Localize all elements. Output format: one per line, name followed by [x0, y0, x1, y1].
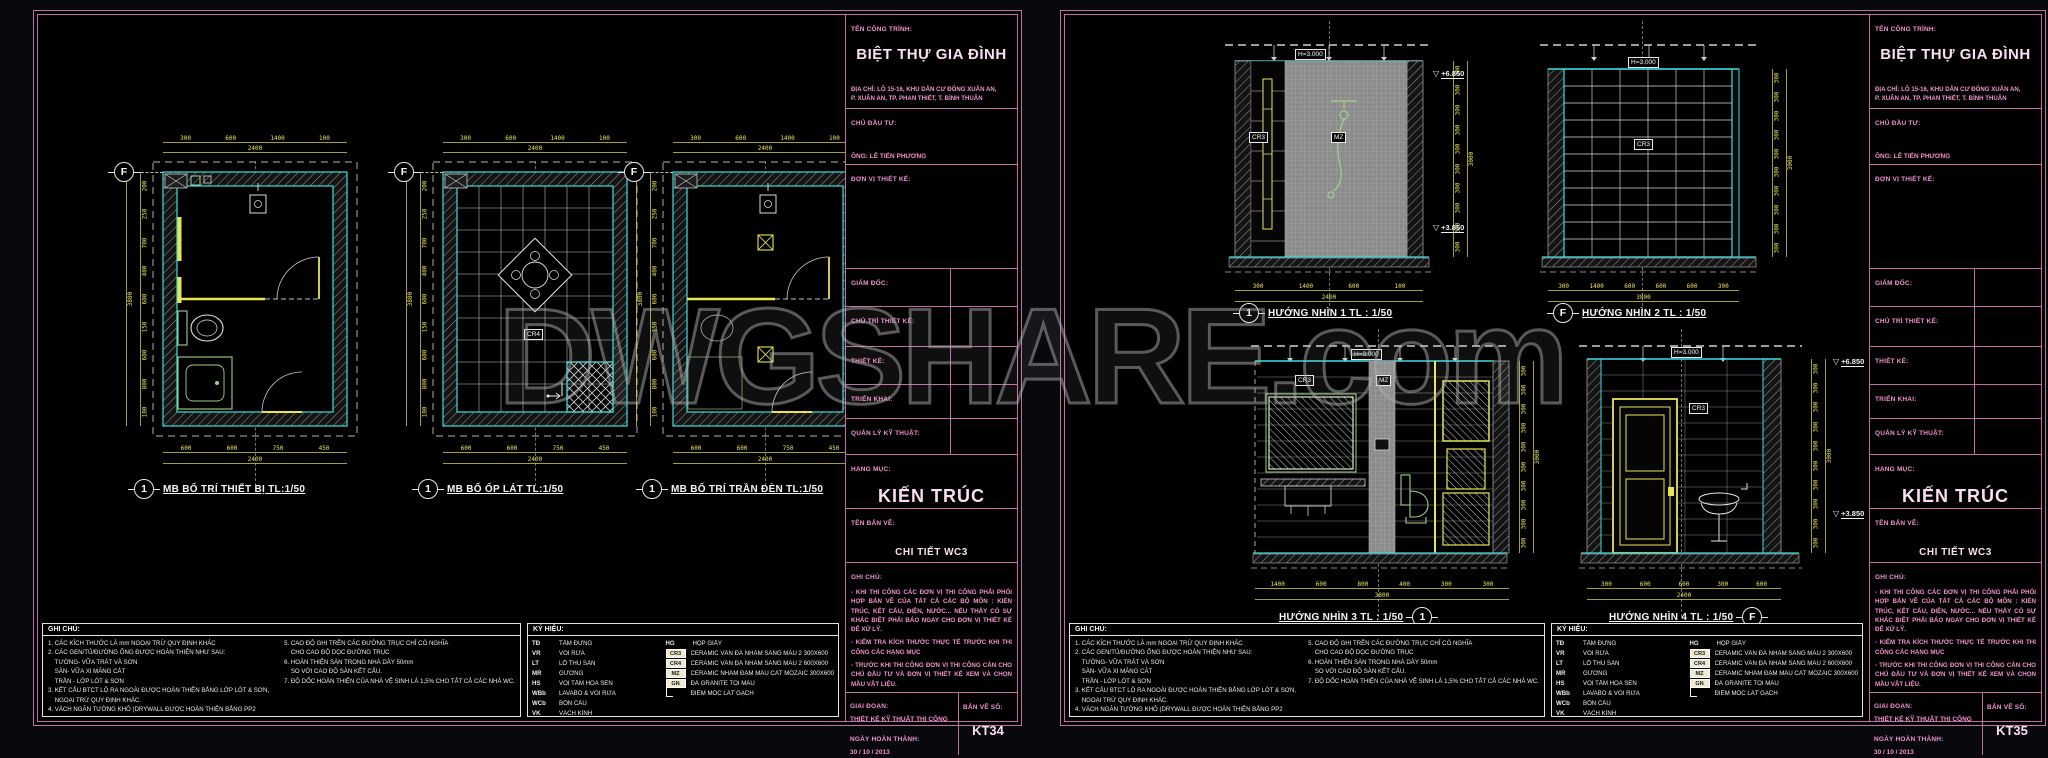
grid-bubble-1: 1	[642, 479, 662, 499]
project-address: ĐỊA CHỈ: LÔ 15-16, KHU DÂN CƯ ĐỒNG XUÂN …	[851, 85, 1012, 105]
legend-row: TĐTẤM ĐỨNG	[532, 638, 662, 648]
legend-name: BỒN CẦU	[559, 700, 587, 707]
legend-name: VÁCH KÍNH	[559, 710, 592, 717]
notes-strip: GHI CHÚ: 1. CÁC KÍCH THƯỚC LÀ mm NGOẠI T…	[42, 623, 839, 717]
grid-bubble-F: F	[394, 162, 414, 182]
legend-name: VÒI RỬA	[559, 650, 585, 657]
dim-col-total: 3000	[1533, 361, 1542, 553]
elevation-1-title-row: 1 HƯỚNG NHÌN 1 TL : 1/50	[1239, 303, 1392, 323]
title-block: TÊN CÔNG TRÌNH: BIỆT THỰ GIA ĐÌNH ĐỊA CH…	[1869, 15, 2041, 721]
notes-strip: GHI CHÚ: 1. CÁC KÍCH THƯỚC LÀ mm NGOẠI T…	[1069, 623, 1863, 717]
tb-develop: TRIỂN KHAI:	[1870, 385, 2041, 419]
elevation-2-title-row: F HƯỚNG NHÌN 2 TL : 1/50	[1553, 303, 1706, 323]
dim-row: 3006001400100	[673, 135, 857, 143]
tb-bottom: GIAI ĐOẠN:THIẾT KẾ KỸ THUẬT THI CÔNG NGÀ…	[846, 693, 1017, 755]
legend-row: CR4CERAMIC VÂN ĐÁ NHÁM SÁNG MÀU 2 600X60…	[1690, 658, 1858, 668]
legend-code: WBb	[532, 690, 554, 697]
legend-code: WCb	[532, 700, 554, 707]
legend-row: MRGƯƠNG	[532, 668, 662, 678]
category-name: KIẾN TRÚC	[851, 486, 1012, 507]
tb-category: HẠNG MỤC: KIẾN TRÚC	[846, 455, 1017, 509]
grid-bubble-F: F	[624, 162, 644, 182]
height-tag: H=3.000	[1351, 349, 1382, 360]
plan-2-drawing	[430, 159, 640, 439]
legend-name: LAVABO & VÒI RỬA	[1583, 690, 1640, 697]
dim-row: 600600750450	[673, 445, 857, 453]
legend-code: GN	[666, 679, 686, 688]
tb-phase: GIAI ĐOẠN:THIẾT KẾ KỸ THUẬT THI CÔNG	[846, 693, 958, 726]
height-tag: H=3.000	[1295, 49, 1326, 60]
dim-col: 300300300300300300300300300300	[1772, 69, 1781, 257]
investor-label: CHỦ ĐẦU TƯ:	[851, 120, 897, 127]
legend-code: MR	[532, 670, 554, 677]
tb-sheet-number: BẢN VẼ SỐ: KT35	[1983, 693, 2041, 755]
legend-code	[666, 688, 686, 699]
legend-row: HSVÒI TẮM HOA SEN	[1556, 678, 1686, 688]
legend-code: MZ	[666, 669, 686, 678]
design-unit-label: ĐƠN VỊ THIẾT KẾ:	[851, 176, 911, 183]
legend-row: HGHỘP GIẤY	[1690, 638, 1858, 648]
tb-notes: GHI CHÚ: - KHI THI CÔNG CÁC ĐƠN VỊ THI C…	[846, 563, 1017, 693]
legend-name: TẤM ĐỨNG	[1583, 640, 1616, 647]
legend-name: VÒI TẮM HOA SEN	[559, 680, 613, 687]
legend-name: VÁCH KÍNH	[1583, 710, 1616, 717]
tb-designer: THIẾT KẾ:	[846, 347, 1017, 385]
tb-date: NGÀY HOÀN THÀNH:30 / 10 / 2013	[846, 726, 958, 758]
legend-code: GN	[1690, 679, 1710, 688]
legend-code: VK	[1556, 710, 1578, 717]
legend-code: HG	[666, 640, 688, 647]
tb-project: TÊN CÔNG TRÌNH: BIỆT THỰ GIA ĐÌNH ĐỊA CH…	[1870, 15, 2041, 109]
view-title: MB BỐ ỐP LÁT TL:1/50	[447, 484, 563, 495]
legend-code: VR	[1556, 650, 1578, 657]
legend-row: TĐTẤM ĐỨNG	[1556, 638, 1686, 648]
legend-code: HG	[1690, 640, 1712, 647]
legend-row: CR3CERAMIC VÂN ĐÁ NHÁM SÁNG MÀU 2 300X60…	[1690, 648, 1858, 658]
dim-col: 200250700400600150600800100	[650, 172, 659, 426]
tile-tag-mz: MZ	[1376, 375, 1391, 386]
legend-code: TĐ	[532, 640, 554, 647]
legend-row: VKVÁCH KÍNH	[532, 708, 662, 718]
legend-name: ĐÁ GRANITE TỐI MÀU	[691, 680, 755, 687]
drawing-name: CHI TIẾT WC3	[1875, 547, 2036, 558]
notes-col-1: 1. CÁC KÍCH THƯỚC LÀ mm NGOẠI TRỪ QUY ĐỊ…	[43, 636, 279, 718]
dim-col-total: 3000	[1467, 61, 1476, 257]
legend-name: VÒI RỬA	[1583, 650, 1609, 657]
investor-name: ÔNG: LÊ TIẾN PHƯƠNG	[851, 153, 926, 160]
dim-row-total: 2400	[443, 456, 627, 464]
tb-drawing-name: TÊN BẢN VẼ: CHI TIẾT WC3	[1870, 509, 2041, 563]
view-title: HƯỚNG NHÌN 3 TL : 1/50	[1279, 612, 1403, 623]
tb-note-2: - KIỂM TRA KÍCH THƯỚC THỰC TẾ TRƯỚC KHI …	[1875, 638, 2036, 657]
sheet-left: 3006001400100 2400 3800 2002507004006001…	[33, 10, 1022, 726]
dim-row-total: 2400	[163, 145, 347, 153]
tb-director: GIÁM ĐỐC:	[846, 269, 1017, 307]
view-title: HƯỚNG NHÌN 2 TL : 1/50	[1582, 308, 1706, 319]
legend-name: CERAMIC VÂN ĐÁ NHÁM SÁNG MÀU 2 600X600	[1715, 660, 1853, 667]
tile-tag-cr3: CR3	[1634, 139, 1653, 150]
legend-code: HS	[532, 680, 554, 687]
grid-bubble-1: 1	[134, 479, 154, 499]
legend-row: WCbBỒN CẦU	[1556, 698, 1686, 708]
tb-note-3: - TRƯỚC KHI THI CÔNG ĐƠN VỊ THI CÔNG CẦN…	[1875, 661, 2036, 689]
legend-name: GƯƠNG	[559, 670, 583, 677]
legend-code: CR3	[1690, 649, 1710, 658]
canvas: 3006001400100 2400 3800 2002507004006001…	[0, 0, 2048, 733]
dim-col-total: 3800	[126, 172, 135, 426]
plan-tiling-layout: 3006001400100 2400 3800 2002507004006001…	[384, 129, 644, 474]
legend-box: KÝ HIỆU: TĐTẤM ĐỨNGVRVÒI RỬALTLỖ THU SÀN…	[527, 623, 839, 717]
legend-code: WCb	[1556, 700, 1578, 707]
legend-row: CR4CERAMIC VÂN ĐÁ NHÁM SÁNG MÀU 2 600X60…	[666, 658, 834, 668]
legend-code: HS	[1556, 680, 1578, 687]
tb-note-1: - KHI THI CÔNG CÁC ĐƠN VỊ THI CÔNG PHẢI …	[851, 588, 1012, 634]
tb-sheet-number: BẢN VẼ SỐ: KT34	[959, 693, 1017, 755]
elevation-view-2: H=3.000 CR3 3003003003003003003003003003…	[1516, 27, 1816, 309]
legend-code: WBb	[1556, 690, 1578, 697]
legend-code: MZ	[1690, 669, 1710, 678]
legend-row: GNĐÁ GRANITE TỐI MÀU	[666, 678, 834, 688]
legend-name: CERAMIC VÂN ĐÁ NHÁM SÁNG MÀU 2 300X600	[1715, 650, 1853, 657]
legend-name: LAVABO & VÒI RỬA	[559, 690, 616, 697]
project-label: TÊN CÔNG TRÌNH:	[1875, 26, 1936, 33]
level-marker-upper: ▽+6.850	[1433, 69, 1464, 79]
dim-row: 3001400600100	[1235, 283, 1423, 291]
legend-code: CR4	[1690, 659, 1710, 668]
tb-design-lead: CHỦ TRÌ THIẾT KẾ:	[1870, 307, 2041, 347]
plan-3-title-row: 1 MB BỐ TRÍ TRẦN ĐÈN TL:1/50	[642, 479, 823, 499]
legend-name: GƯƠNG	[1583, 670, 1607, 677]
legend-col-left: TĐTẤM ĐỨNGVRVÒI RỬALTLỖ THU SÀNMRGƯƠNGHS…	[532, 638, 662, 718]
legend-row: LTLỖ THU SÀN	[1556, 658, 1686, 668]
legend-row: MZCERAMIC NHÁM ĐẬM MÀU CÁT MOZAIC 300X60…	[1690, 668, 1858, 678]
elevation-1-drawing	[1219, 39, 1439, 279]
tile-tag-cr3: CR3	[1249, 132, 1268, 143]
dim-col: 300300300300300300300300300300	[1811, 359, 1820, 553]
dim-col-total: 3000	[1825, 359, 1834, 553]
dim-row: 300600600300600	[1587, 581, 1781, 589]
title-block: TÊN CÔNG TRÌNH: BIỆT THỰ GIA ĐÌNH ĐỊA CH…	[845, 15, 1017, 721]
grid-bubble-F: F	[1553, 303, 1573, 323]
tb-note-2: - KIỂM TRA KÍCH THƯỚC THỰC TẾ TRƯỚC KHI …	[851, 638, 1012, 657]
legend-name: CERAMIC VÂN ĐÁ NHÁM SÁNG MÀU 2 300X600	[691, 650, 829, 657]
tb-tech-manager: QUẢN LÝ KỸ THUẬT:	[1870, 419, 2041, 455]
legend-row: VKVÁCH KÍNH	[1556, 708, 1686, 718]
tile-tag-mz: MZ	[1331, 132, 1346, 143]
dim-row: 3006001400100	[163, 135, 347, 143]
legend-code: CR3	[666, 649, 686, 658]
legend-row: MRGƯƠNG	[1556, 668, 1686, 678]
legend-row: ĐIỂM MỐC LÁT GẠCH	[666, 688, 834, 698]
tb-date: NGÀY HOÀN THÀNH:30 / 10 / 2013	[1870, 726, 1982, 758]
sheet-right: H=3.000 CR3 MZ 3003003003003003003003003…	[1060, 10, 2046, 726]
project-label: TÊN CÔNG TRÌNH:	[851, 26, 912, 33]
tb-note-3: - TRƯỚC KHI THI CÔNG ĐƠN VỊ THI CÔNG CẦN…	[851, 661, 1012, 689]
legend-row: ĐIỂM MỐC LÁT GẠCH	[1690, 688, 1858, 698]
general-notes-box: GHI CHÚ: 1. CÁC KÍCH THƯỚC LÀ mm NGOẠI T…	[42, 623, 521, 717]
tb-phase: GIAI ĐOẠN:THIẾT KẾ KỸ THUẬT THI CÔNG	[1870, 693, 1982, 726]
view-title: HƯỚNG NHÌN 4 TL : 1/50	[1609, 612, 1733, 623]
legend-code: LT	[1556, 660, 1578, 667]
elevation-4-drawing	[1573, 341, 1808, 576]
dim-row-total: 3800	[1548, 294, 1739, 302]
legend-header: KÝ HIỆU:	[528, 624, 838, 636]
elevation-view-3: H=3.000 CR3 MZ 3003003003003003003003003…	[1231, 331, 1551, 609]
tb-investor: CHỦ ĐẦU TƯ: ÔNG: LÊ TIẾN PHƯƠNG	[846, 109, 1017, 165]
dim-col-total: 3800	[636, 172, 645, 426]
legend-col-right: HGHỘP GIẤYCR3CERAMIC VÂN ĐÁ NHÁM SÁNG MÀ…	[666, 638, 834, 718]
grid-bubble-1: 1	[418, 479, 438, 499]
legend-box: KÝ HIỆU: TĐTẤM ĐỨNGVRVÒI RỬALTLỖ THU SÀN…	[1551, 623, 1863, 717]
project-name: BIỆT THỰ GIA ĐÌNH	[851, 46, 1012, 63]
plan-1-drawing	[150, 159, 360, 439]
tb-bottom: GIAI ĐOẠN:THIẾT KẾ KỸ THUẬT THI CÔNG NGÀ…	[1870, 693, 2041, 755]
plan-equipment-layout: 3006001400100 2400 3800 2002507004006001…	[104, 129, 364, 474]
legend-row: GNĐÁ GRANITE TỐI MÀU	[1690, 678, 1858, 688]
tb-develop: TRIỂN KHAI:	[846, 385, 1017, 419]
legend-row: HGHỘP GIẤY	[666, 638, 834, 648]
dim-col: 200250700400600150600800100	[420, 172, 429, 426]
investor-label: CHỦ ĐẦU TƯ:	[1875, 120, 1921, 127]
tile-tag-cr4: CR4	[524, 329, 543, 340]
level-marker-lower: ▽+3.850	[1833, 509, 1864, 519]
sheet-number: KT34	[963, 723, 1013, 738]
dim-row: 3001400600600600300	[1548, 283, 1739, 291]
tb-tech-manager: QUẢN LÝ KỸ THUẬT:	[846, 419, 1017, 455]
notes-header: GHI CHÚ:	[43, 624, 520, 636]
sheet-number: KT35	[1987, 723, 2037, 738]
tb-drawing-name: TÊN BẢN VẼ: CHI TIẾT WC3	[846, 509, 1017, 563]
dim-row-total: 2400	[1235, 294, 1423, 302]
legend-row: VRVÒI RỬA	[532, 648, 662, 658]
legend-name: CERAMIC NHÁM ĐẬM MÀU CÁT MOZAIC 300X600	[1715, 670, 1858, 677]
tb-designer: THIẾT KẾ:	[1870, 347, 2041, 385]
legend-name: VÒI TẮM HOA SEN	[1583, 680, 1637, 687]
legend-row: WCbBỒN CẦU	[532, 698, 662, 708]
view-title: MB BỐ TRÍ THIẾT BỊ TL:1/50	[163, 484, 305, 495]
tile-tag-cr3: CR3	[1689, 403, 1708, 414]
legend-name: ĐIỂM MỐC LÁT GẠCH	[691, 690, 754, 697]
tb-director: GIÁM ĐỐC:	[1870, 269, 2041, 307]
dim-col: 200250700400600150600800100	[140, 172, 149, 426]
legend-name: ĐIỂM MỐC LÁT GẠCH	[1715, 690, 1778, 697]
notes-col-2: 5. CAO ĐỘ GHI TRÊN CÁC ĐƯỜNG TRỤC CHỈ CÓ…	[279, 636, 520, 718]
legend-code: CR4	[666, 659, 686, 668]
tb-design-lead: CHỦ TRÌ THIẾT KẾ:	[846, 307, 1017, 347]
tb-note-1: - KHI THI CÔNG CÁC ĐƠN VỊ THI CÔNG PHẢI …	[1875, 588, 2036, 634]
grid-bubble-F: F	[114, 162, 134, 182]
plan-2-title-row: 1 MB BỐ ỐP LÁT TL:1/50	[418, 479, 563, 499]
plan-ceiling-layout: 3006001400100 2400 3800 2002507004006001…	[614, 129, 874, 474]
legend-row: CR3CERAMIC VÂN ĐÁ NHÁM SÁNG MÀU 2 300X60…	[666, 648, 834, 658]
dim-col-total: 3800	[406, 172, 415, 426]
dim-row-total: 2400	[443, 145, 627, 153]
legend-code: MR	[1556, 670, 1578, 677]
drawing-name: CHI TIẾT WC3	[851, 547, 1012, 558]
dim-row-total: 3800	[1255, 592, 1509, 600]
legend-name: HỘP GIẤY	[1717, 640, 1746, 647]
tb-design-unit: ĐƠN VỊ THIẾT KẾ:	[846, 165, 1017, 269]
legend-header: KÝ HIỆU:	[1552, 624, 1862, 636]
tb-investor: CHỦ ĐẦU TƯ: ÔNG: LÊ TIẾN PHƯƠNG	[1870, 109, 2041, 165]
dim-col: 300300300300300300300300300300	[1519, 361, 1528, 553]
elevation-2-drawing	[1534, 39, 1764, 279]
legend-row: VRVÒI RỬA	[1556, 648, 1686, 658]
legend-name: CERAMIC NHÁM ĐẬM MÀU CÁT MOZAIC 300X600	[691, 670, 834, 677]
dim-row: 600600750450	[163, 445, 347, 453]
dim-row: 3006001400100	[443, 135, 627, 143]
legend-code: VK	[532, 710, 554, 717]
legend-name: LỖ THU SÀN	[1583, 660, 1619, 667]
legend-row: WBbLAVABO & VÒI RỬA	[1556, 688, 1686, 698]
investor-name: ÔNG: LÊ TIẾN PHƯƠNG	[1875, 153, 1950, 160]
view-title: MB BỐ TRÍ TRẦN ĐÈN TL:1/50	[671, 484, 823, 495]
tb-notes: GHI CHÚ: - KHI THI CÔNG CÁC ĐƠN VỊ THI C…	[1870, 563, 2041, 693]
legend-code: VR	[532, 650, 554, 657]
plan-3-drawing	[660, 159, 870, 439]
dim-row-total: 2400	[163, 456, 347, 464]
legend-row: MZCERAMIC NHÁM ĐẬM MÀU CÁT MOZAIC 300X60…	[666, 668, 834, 678]
legend-code: TĐ	[1556, 640, 1578, 647]
height-tag: H=3.000	[1671, 347, 1702, 358]
height-tag: H=3.000	[1628, 57, 1659, 68]
plan-1-title-row: 1 MB BỐ TRÍ THIẾT BỊ TL:1/50	[134, 479, 305, 499]
legend-name: BỒN CẦU	[1583, 700, 1611, 707]
legend-name: CERAMIC VÂN ĐÁ NHÁM SÁNG MÀU 2 600X600	[691, 660, 829, 667]
legend-name: HỘP GIẤY	[693, 640, 722, 647]
level-marker-lower: ▽+3.850	[1433, 223, 1464, 233]
grid-bubble-1: 1	[1239, 303, 1259, 323]
legend-row: WBbLAVABO & VÒI RỬA	[532, 688, 662, 698]
legend-col-right: HGHỘP GIẤYCR3CERAMIC VÂN ĐÁ NHÁM SÁNG MÀ…	[1690, 638, 1858, 718]
dim-row-total: 2400	[1587, 592, 1781, 600]
legend-name: ĐÁ GRANITE TỐI MÀU	[1715, 680, 1779, 687]
legend-code	[1690, 688, 1710, 699]
project-address: ĐỊA CHỈ: LÔ 15-16, KHU DÂN CƯ ĐỒNG XUÂN …	[1875, 85, 2036, 105]
category-name: KIẾN TRÚC	[1875, 486, 2036, 507]
tb-design-unit: ĐƠN VỊ THIẾT KẾ:	[1870, 165, 2041, 269]
tb-project: TÊN CÔNG TRÌNH: BIỆT THỰ GIA ĐÌNH ĐỊA CH…	[846, 15, 1017, 109]
legend-col-left: TĐTẤM ĐỨNGVRVÒI RỬALTLỖ THU SÀNMRGƯƠNGHS…	[1556, 638, 1686, 718]
notes-header: GHI CHÚ:	[1070, 624, 1544, 636]
notes-col-2: 5. CAO ĐỘ GHI TRÊN CÁC ĐƯỜNG TRỤC CHỈ CÓ…	[1303, 636, 1544, 718]
legend-name: TẤM ĐỨNG	[559, 640, 592, 647]
elevation-view-4: H=3.000 CR3 3003003003003003003003003003…	[1561, 331, 1861, 609]
design-unit-label: ĐƠN VỊ THIẾT KẾ:	[1875, 176, 1935, 183]
general-notes-box: GHI CHÚ: 1. CÁC KÍCH THƯỚC LÀ mm NGOẠI T…	[1069, 623, 1545, 717]
dim-row-total: 2400	[673, 456, 857, 464]
level-marker-upper: ▽+6.850	[1833, 357, 1864, 367]
legend-row: HSVÒI TẮM HOA SEN	[532, 678, 662, 688]
legend-name: LỖ THU SÀN	[559, 660, 595, 667]
legend-code: LT	[532, 660, 554, 667]
dim-row: 600600750450	[443, 445, 627, 453]
project-name: BIỆT THỰ GIA ĐÌNH	[1875, 46, 2036, 63]
tile-tag-cr3: CR3	[1295, 375, 1314, 386]
tb-category: HẠNG MỤC: KIẾN TRÚC	[1870, 455, 2041, 509]
dim-row: 1400600800400300300	[1255, 581, 1509, 589]
view-title: HƯỚNG NHÌN 1 TL : 1/50	[1268, 308, 1392, 319]
dim-col-total: 3000	[1786, 69, 1795, 257]
legend-row: LTLỖ THU SÀN	[532, 658, 662, 668]
dim-row-total: 2400	[673, 145, 857, 153]
notes-col-1: 1. CÁC KÍCH THƯỚC LÀ mm NGOẠI TRỪ QUY ĐỊ…	[1070, 636, 1303, 718]
